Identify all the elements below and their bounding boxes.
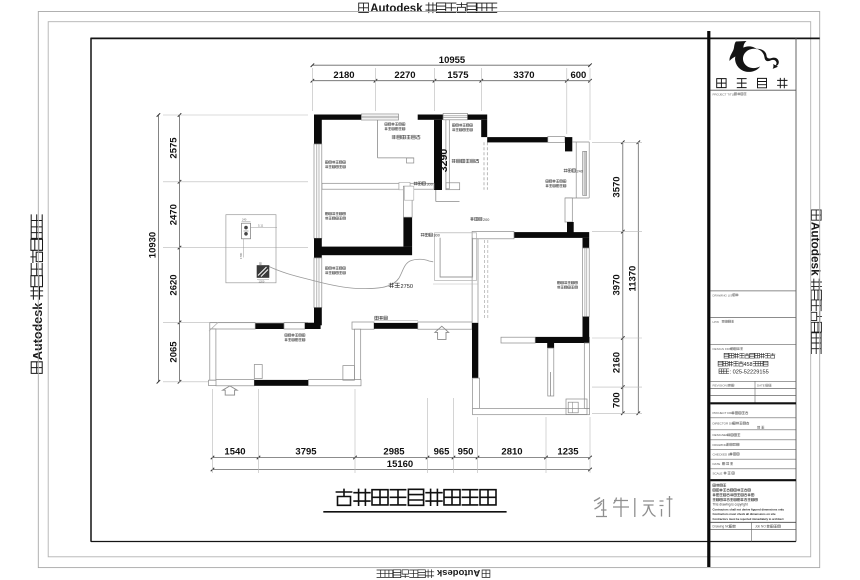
svg-text:Job NO: Job NO [755,525,766,529]
svg-text:2180: 2180 [333,70,354,81]
svg-text:DIRECTOR DIR.: DIRECTOR DIR. [713,422,736,426]
svg-text:2065: 2065 [169,341,180,363]
svg-text:Contractors shall not derive f: Contractors shall not derive figured dim… [713,507,785,511]
svg-text:DESIGNER: DESIGNER [713,433,730,437]
svg-text:200: 200 [483,218,489,222]
svg-text:Drawing NO: Drawing NO [713,525,731,529]
svg-text:240: 240 [577,169,583,173]
svg-text:2620: 2620 [169,274,180,295]
svg-text:10930: 10930 [148,232,159,258]
svg-text:Autodesk: Autodesk [436,567,480,578]
svg-text:DRAWING LIST: DRAWING LIST [713,293,735,297]
svg-text:LPW: LPW [713,320,720,324]
svg-text:240: 240 [242,218,247,222]
svg-text:3970: 3970 [612,274,623,295]
svg-text:700: 700 [612,392,623,408]
svg-text:This drawing is copyright: This drawing is copyright [713,503,748,507]
svg-text:2470: 2470 [169,204,180,225]
svg-text:2985: 2985 [383,447,405,458]
svg-text:Contractors must be reported i: Contractors must be reported immediately… [713,517,784,521]
svg-text:2270: 2270 [394,70,415,81]
svg-text:3290: 3290 [438,149,450,173]
svg-text:3370: 3370 [513,70,534,81]
svg-text:DATE: DATE [757,384,765,388]
svg-text:2575: 2575 [169,137,180,159]
svg-text:SCALE: SCALE [713,471,723,475]
svg-text:1575: 1575 [447,70,469,81]
svg-text:DRAWING: DRAWING [713,443,728,447]
svg-text:2810: 2810 [501,447,522,458]
svg-text:950: 950 [458,447,474,458]
svg-text:2160: 2160 [612,352,623,373]
svg-text:PROJECT TITLE: PROJECT TITLE [713,92,736,96]
svg-text:11370: 11370 [628,266,639,292]
svg-text:Contractors must check all dim: Contractors must check all dimensions on… [713,512,776,516]
svg-text:300: 300 [427,182,433,186]
svg-text:458: 458 [744,362,753,368]
svg-text:600: 600 [570,70,586,81]
svg-text:1780: 1780 [239,252,243,259]
svg-text:3570: 3570 [612,176,623,197]
svg-text:15160: 15160 [387,459,413,470]
svg-text:CHECKED BY: CHECKED BY [713,452,733,456]
svg-text:: 025-52229155: : 025-52229155 [730,370,769,376]
svg-text:10955: 10955 [439,55,466,66]
svg-text:REVISIONS: REVISIONS [713,384,729,388]
svg-text:PROJECT DIR.: PROJECT DIR. [713,411,734,415]
svg-text:DESIGN FIRM: DESIGN FIRM [713,347,733,351]
svg-text:1235: 1235 [557,447,579,458]
svg-text:1200: 1200 [259,279,265,283]
svg-text:3795: 3795 [295,447,317,458]
svg-text:Autodesk: Autodesk [370,3,423,15]
svg-text:窗: 窗 [259,261,262,265]
svg-text:DATE: DATE [713,462,721,466]
svg-text:965: 965 [434,447,451,458]
svg-text:2750: 2750 [401,284,413,290]
svg-text:5.11: 5.11 [258,223,264,227]
svg-text:1540: 1540 [224,447,245,458]
svg-text:300: 300 [434,234,440,238]
